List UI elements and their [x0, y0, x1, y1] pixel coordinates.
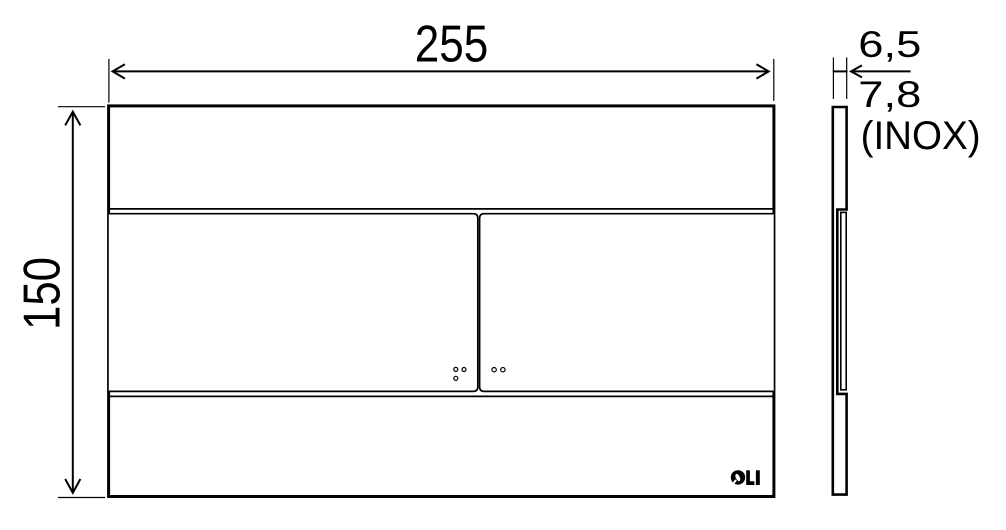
svg-text:6,5: 6,5	[858, 24, 921, 65]
svg-text:(INOX): (INOX)	[861, 114, 981, 158]
svg-text:7,8: 7,8	[858, 74, 921, 115]
svg-text:255: 255	[415, 15, 489, 73]
svg-text:150: 150	[13, 257, 71, 330]
